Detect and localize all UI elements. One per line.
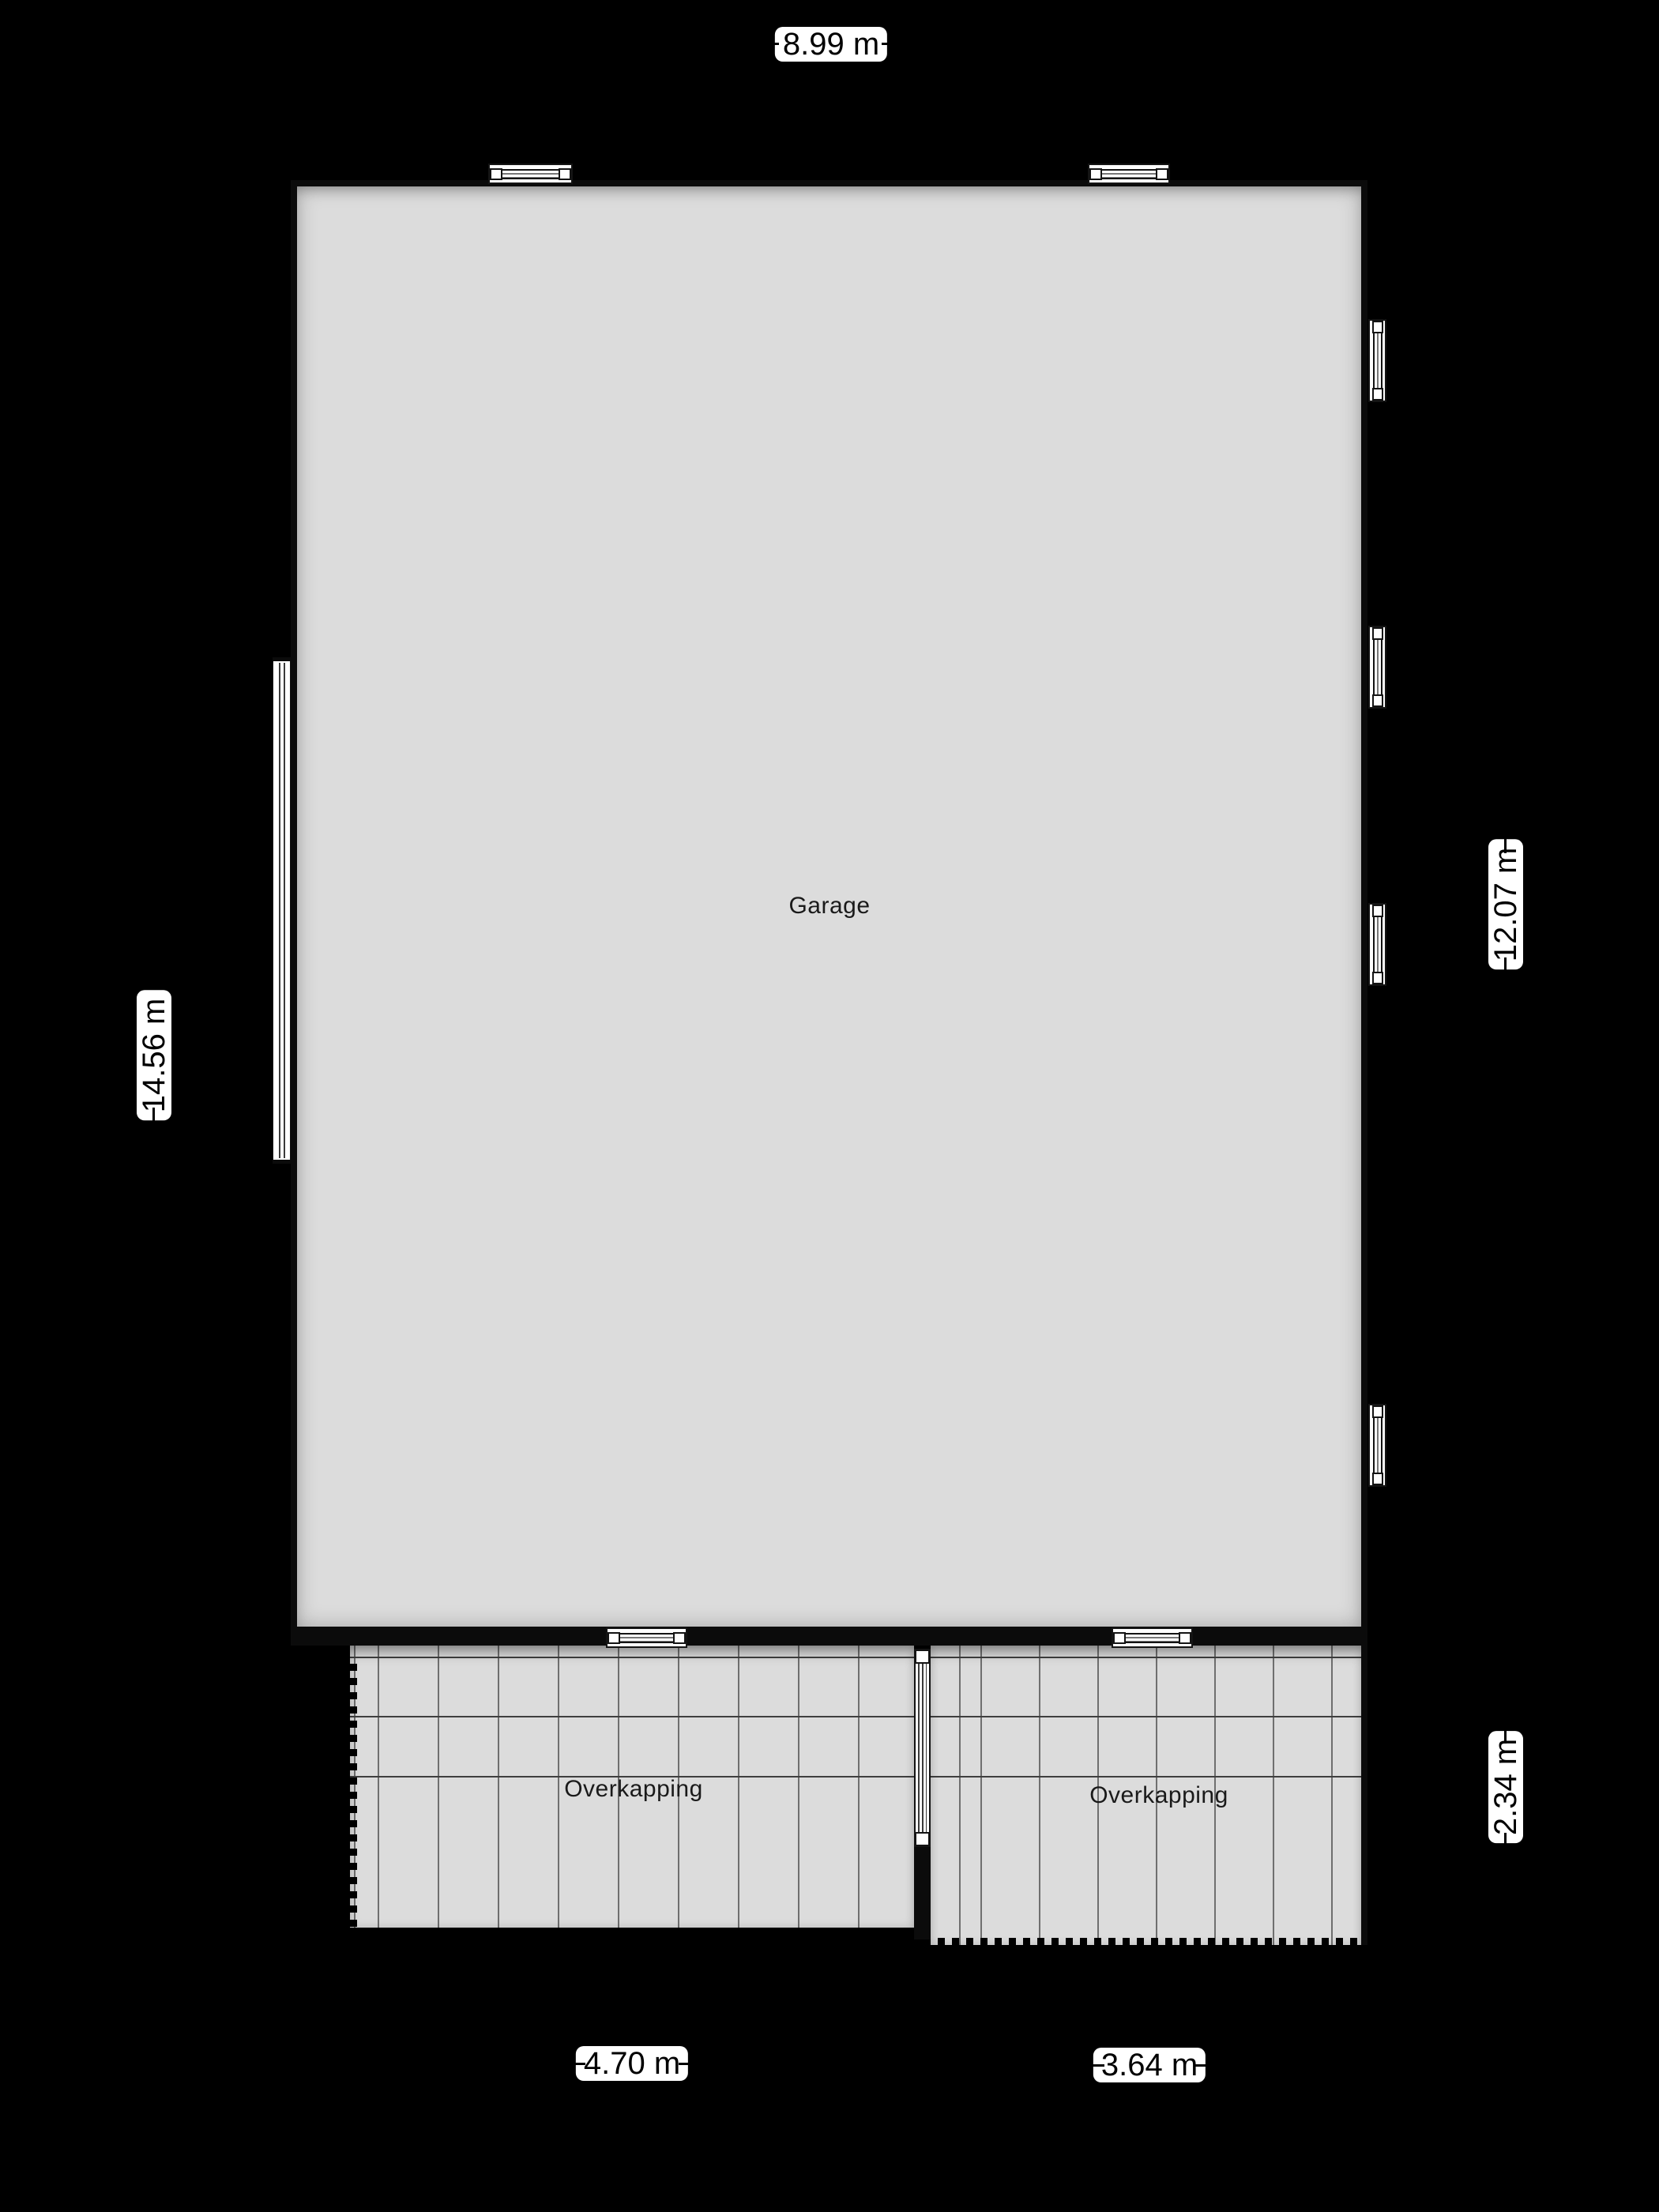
garage-door-left [273, 660, 291, 1161]
overkapping-left-label: Overkapping [564, 1776, 703, 1803]
garage-room-label: Garage [788, 893, 870, 920]
window-right-2 [1368, 626, 1386, 709]
window-jamb [1372, 1473, 1383, 1485]
window-jamb [1372, 694, 1383, 707]
dim-tick [571, 2063, 585, 2065]
dim-tick [882, 43, 896, 45]
dimension-bottom-left: 4.70 m [576, 2046, 688, 2081]
window-jamb [1372, 627, 1383, 640]
window-glass [1373, 914, 1382, 975]
window-jamb [673, 1632, 686, 1644]
overkapping-right-label: Overkapping [1089, 1782, 1228, 1809]
overkapping-right-side-wall [1361, 1646, 1367, 1945]
dimension-top: 8.99 m [775, 27, 887, 62]
window-right-3 [1368, 903, 1386, 986]
window-jamb [1113, 1632, 1126, 1644]
window-jamb [1372, 388, 1383, 401]
passage-bottom-right [1112, 1627, 1193, 1648]
window-jamb [608, 1632, 620, 1644]
dim-tick [1194, 2064, 1209, 2067]
dim-tick [679, 2063, 693, 2065]
dim-tick [152, 1108, 155, 1122]
window-jamb [1372, 905, 1383, 917]
overkapping-right-open-edge [931, 1938, 1361, 1945]
window-glass [617, 1633, 676, 1643]
dim-tick [1504, 839, 1507, 853]
canopy-divider-screen [914, 1649, 931, 1847]
garage-door-louvers [279, 663, 288, 1158]
window-glass [1099, 169, 1159, 179]
window-right-1 [1368, 319, 1386, 402]
dim-tick [1504, 1729, 1507, 1744]
window-top-right [1088, 164, 1170, 184]
dimension-right-lower: 2.34 m [1488, 1731, 1523, 1843]
canopy-divider-cap-top [915, 1650, 930, 1664]
dim-tick [765, 43, 779, 45]
window-jamb [1156, 168, 1168, 180]
dimension-left: 14.56 m [137, 991, 171, 1121]
window-jamb [1179, 1632, 1191, 1644]
floor-plan: Garage Overkapping Overkapping 8.99 m 14… [0, 0, 1659, 2212]
canopy-divider-cap-bottom [915, 1832, 930, 1846]
window-glass [499, 169, 562, 179]
dimension-right-upper: 12.07 m [1488, 840, 1523, 970]
dimension-bottom-right: 3.64 m [1093, 2048, 1206, 2082]
garage-door-cap-top [273, 657, 291, 661]
window-right-4 [1368, 1404, 1386, 1487]
window-jamb [1372, 321, 1383, 333]
canopy-divider-louvers [918, 1663, 927, 1833]
window-jamb [1372, 972, 1383, 984]
dim-tick [1504, 1833, 1507, 1847]
window-glass [1123, 1633, 1182, 1643]
window-top-left [488, 164, 573, 184]
overkapping-left-open-edge [350, 1657, 357, 1928]
garage-door-cap-bottom [273, 1160, 291, 1164]
window-jamb [490, 168, 502, 180]
window-glass [1373, 330, 1382, 391]
canopy-divider-post [914, 1847, 931, 1939]
dim-tick [1090, 2064, 1104, 2067]
window-jamb [559, 168, 571, 180]
dim-tick [1504, 957, 1507, 972]
window-jamb [1372, 1405, 1383, 1418]
window-jamb [1089, 168, 1102, 180]
window-glass [1373, 1415, 1382, 1476]
passage-bottom-left [606, 1627, 687, 1648]
window-glass [1373, 637, 1382, 698]
